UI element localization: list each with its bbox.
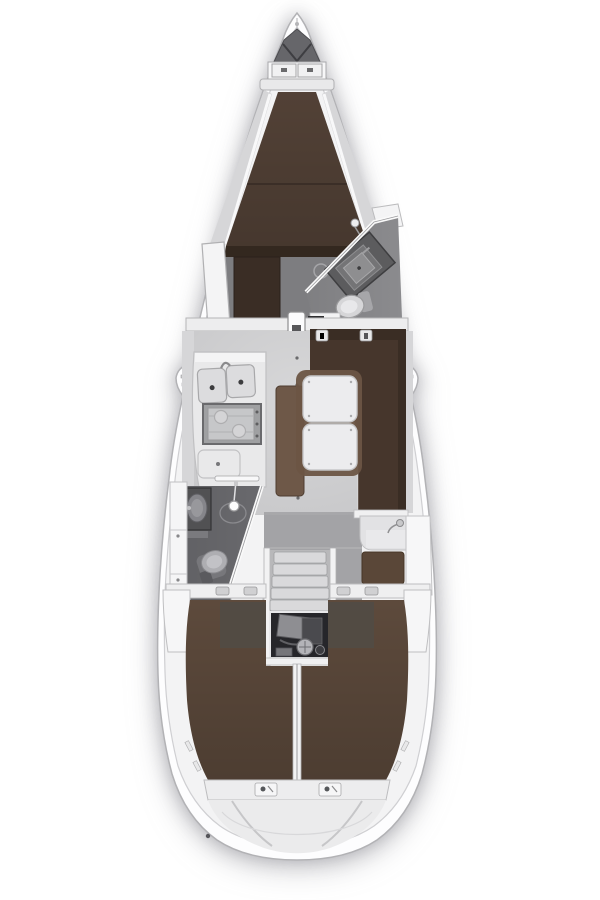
companionway-steps [270, 552, 330, 611]
berth-cushion-section [328, 602, 374, 648]
boat-floor-plan-canvas [0, 0, 600, 900]
galley [192, 352, 266, 487]
galley-stove [203, 404, 261, 444]
nav-seat [362, 552, 404, 584]
salon-table [296, 370, 362, 476]
mast-post [288, 312, 305, 334]
companionway [264, 548, 336, 666]
boat-floor-plan [0, 0, 600, 900]
engine-compartment [270, 612, 330, 658]
forestay-fitting [295, 22, 299, 26]
berth-foot-shelf [204, 780, 390, 800]
berth-cushion-section [220, 602, 266, 648]
starboard-locker-column [406, 516, 432, 595]
bow-lockers [268, 62, 326, 79]
forward-wardrobe [234, 257, 280, 321]
nav-station [360, 516, 432, 595]
aft-head-sink [184, 488, 211, 538]
berth-divider [293, 664, 301, 782]
vberth-headboard [260, 79, 334, 90]
drain-fitting [206, 834, 210, 838]
